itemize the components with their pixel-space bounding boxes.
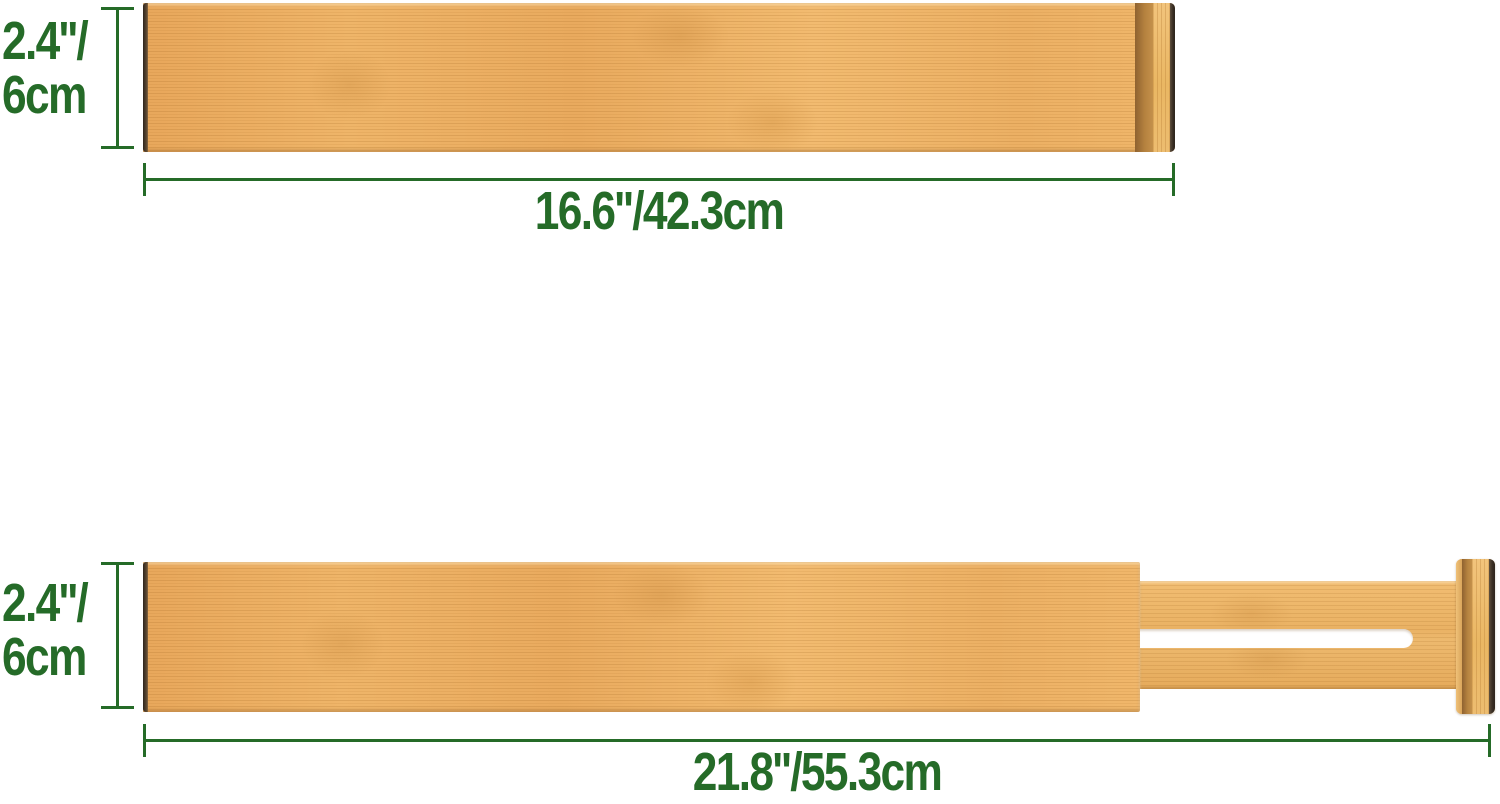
adjustment-slot [1138,629,1413,648]
height-dimension-line [116,564,119,708]
height-label-line1: 2.4''/ [2,14,87,68]
height-label: 2.4''/ 6cm [2,576,87,684]
dimension-end-cap [101,146,134,149]
board-left-dark-edge [143,3,148,152]
height-label: 2.4''/ 6cm [2,14,87,122]
height-dimension-line [116,8,119,149]
dimension-tick [1488,724,1491,757]
height-label-line2: 6cm [2,630,87,684]
end-cap-face [1472,559,1489,714]
extension-arm [1140,581,1458,689]
board-right-dark-edge [1170,3,1175,152]
end-cap-shadow-strip [1462,559,1472,714]
top-divider-board [143,3,1175,152]
end-cap-dark-edge [1489,559,1495,714]
spring-end-cap [1456,559,1495,714]
product-dimension-diagram: 2.4''/ 6cm 16.6''/42.3cm 2.4''/ 6cm [0,0,1500,804]
length-label: 16.6''/42.3cm [236,184,1082,238]
height-label-line1: 2.4''/ [2,576,87,630]
board-left-dark-edge [143,562,148,712]
end-cap-shadow-strip [1135,3,1153,152]
dimension-end-cap [101,706,134,709]
dimension-tick [1172,163,1175,196]
end-cap-face [1153,3,1170,152]
height-label-line2: 6cm [2,68,87,122]
bottom-divider-board [143,562,1140,712]
length-label: 21.8''/55.3cm [264,745,1369,799]
